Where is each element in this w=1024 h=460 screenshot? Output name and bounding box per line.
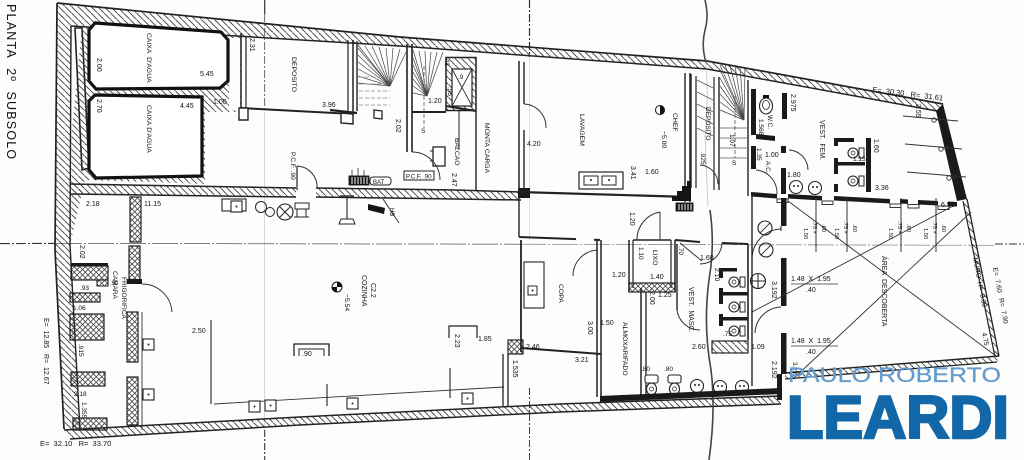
svg-text:COPA: COPA [557, 284, 564, 303]
svg-text:2.70: 2.70 [95, 99, 102, 113]
svg-text:VEST. MASC.: VEST. MASC. [687, 287, 694, 333]
svg-text:2.18: 2.18 [74, 391, 87, 398]
svg-text:LAVAGEM: LAVAGEM [578, 114, 585, 146]
svg-text:C2.2: C2.2 [369, 283, 376, 298]
svg-text:1.60: 1.60 [700, 255, 714, 262]
svg-text:1.20: 1.20 [612, 272, 626, 279]
svg-text:.75 ×: .75 × [811, 221, 817, 234]
svg-text:2.55: 2.55 [914, 104, 921, 118]
svg-text:2.192: 2.192 [770, 361, 777, 379]
svg-text:CHEF: CHEF [671, 113, 678, 132]
svg-text:1.85: 1.85 [478, 336, 492, 343]
svg-text:6.51: 6.51 [941, 202, 955, 209]
svg-text:2.60: 2.60 [692, 344, 706, 351]
svg-text:1.07: 1.07 [728, 134, 735, 147]
svg-text:.925: .925 [699, 152, 706, 165]
svg-text:2.23: 2.23 [453, 334, 460, 348]
svg-text:.75 ×: .75 × [842, 221, 848, 234]
svg-text:1.09: 1.09 [751, 344, 765, 351]
svg-text:1.06: 1.06 [73, 305, 86, 312]
svg-text:2.10: 2.10 [713, 268, 720, 281]
svg-text:1.355: 1.355 [80, 402, 87, 419]
svg-text:1.50: 1.50 [922, 228, 928, 239]
svg-text:BAT: BAT [373, 180, 385, 186]
svg-text:1.40: 1.40 [650, 274, 664, 281]
svg-text:.93: .93 [80, 285, 89, 292]
svg-text:3.41: 3.41 [629, 166, 636, 180]
svg-text:.60: .60 [905, 224, 911, 232]
svg-text:.90: .90 [302, 351, 312, 358]
svg-text:1.48 X 1.95: 1.48 X 1.95 [791, 276, 831, 283]
svg-text:1.80: 1.80 [787, 172, 801, 179]
svg-text:1.60: 1.60 [645, 169, 659, 176]
svg-text:1.15: 1.15 [853, 156, 866, 163]
svg-text:2.975: 2.975 [789, 94, 796, 112]
svg-text:HB: HB [388, 208, 394, 216]
svg-text:1.50: 1.50 [600, 320, 614, 327]
svg-text:11.15: 11.15 [144, 201, 161, 208]
svg-text:−5.54: −5.54 [343, 294, 350, 311]
svg-text:2.02: 2.02 [394, 119, 401, 133]
svg-text:.42: .42 [443, 57, 450, 66]
svg-text:DEPOSITO: DEPOSITO [290, 57, 297, 92]
svg-text:.40: .40 [806, 287, 816, 294]
svg-text:1.35: 1.35 [755, 148, 762, 161]
svg-text:3.192: 3.192 [770, 281, 777, 299]
svg-text:ÁREA DESCOBERTA: ÁREA DESCOBERTA [880, 256, 889, 327]
svg-text:4.20: 4.20 [527, 141, 541, 148]
svg-text:1.00: 1.00 [213, 99, 227, 106]
svg-text:P.C.F. .90: P.C.F. .90 [289, 152, 296, 180]
svg-text:1.25: 1.25 [658, 292, 672, 299]
svg-text:3.21: 3.21 [575, 357, 589, 364]
svg-text:4.45: 4.45 [180, 103, 194, 110]
svg-text:.80: .80 [641, 366, 650, 373]
svg-text:LEARDI: LEARDI [787, 384, 1009, 451]
svg-text:1.10: 1.10 [637, 247, 644, 260]
svg-text:CAIXA D'AGUA: CAIXA D'AGUA [145, 33, 152, 83]
svg-text:3.96: 3.96 [322, 102, 336, 109]
svg-text:ALMOXARIFADO: ALMOXARIFADO [621, 322, 628, 376]
svg-text:1.50: 1.50 [833, 228, 839, 239]
svg-text:P.C.F. .90: P.C.F. .90 [406, 175, 432, 181]
svg-text:1.20: 1.20 [428, 98, 442, 105]
svg-text:2.00: 2.00 [95, 58, 102, 72]
svg-text:2.18: 2.18 [86, 201, 100, 208]
svg-text:CAIXA D'AGUA: CAIXA D'AGUA [145, 105, 152, 153]
svg-text:S: S [732, 160, 737, 167]
svg-text:.75 ×: .75 × [931, 221, 937, 234]
svg-text:.60: .60 [940, 224, 946, 232]
svg-text:1.48 X 1.95: 1.48 X 1.95 [791, 338, 831, 345]
svg-text:1.50: 1.50 [802, 228, 808, 239]
svg-text:FRIGORIFICA: FRIGORIFICA [120, 277, 127, 320]
svg-text:BALCAO: BALCAO [453, 138, 460, 166]
svg-text:1.535: 1.535 [511, 360, 518, 378]
svg-text:.9: .9 [458, 74, 464, 81]
svg-text:3.00: 3.00 [586, 321, 593, 335]
svg-text:.95: .95 [446, 87, 453, 96]
svg-text:.90: .90 [110, 281, 119, 287]
svg-text:LIXO: LIXO [651, 250, 658, 266]
svg-text:2.00: 2.00 [648, 291, 655, 305]
svg-text:2.31: 2.31 [248, 38, 255, 52]
svg-text:.75 ×: .75 × [896, 221, 902, 234]
svg-text:3.36: 3.36 [875, 185, 889, 192]
svg-text:VEST. FEM.: VEST. FEM. [818, 120, 825, 160]
svg-text:1.20: 1.20 [628, 212, 635, 226]
svg-text:1.60: 1.60 [872, 139, 879, 153]
svg-text:.40: .40 [806, 349, 816, 356]
svg-text:.70: .70 [677, 246, 684, 255]
svg-text:2.02: 2.02 [78, 245, 85, 259]
svg-text:COZINHA: COZINHA [360, 275, 367, 307]
svg-text:.915: .915 [77, 344, 84, 357]
svg-text:A.C.: A.C. [764, 161, 771, 174]
svg-text:5.45: 5.45 [200, 71, 214, 78]
svg-text:W.C.: W.C. [766, 115, 773, 129]
svg-text:1.00: 1.00 [765, 152, 779, 159]
svg-text:DEPOSITO: DEPOSITO [704, 107, 711, 140]
svg-text:PLANTA 2º SUBSOLO: PLANTA 2º SUBSOLO [4, 4, 18, 160]
svg-text:2.46: 2.46 [526, 344, 540, 351]
svg-text:1.568: 1.568 [757, 119, 764, 136]
svg-text:−5.00: −5.00 [660, 131, 667, 148]
svg-text:S: S [421, 128, 426, 135]
svg-text:.80: .80 [664, 366, 673, 373]
svg-text:1.50: 1.50 [887, 228, 893, 239]
svg-text:2.47: 2.47 [450, 173, 457, 187]
svg-text:2.50: 2.50 [192, 328, 206, 335]
svg-text:E= 12.85 R= 12.67: E= 12.85 R= 12.67 [42, 318, 49, 385]
svg-text:.60: .60 [820, 224, 826, 232]
svg-text:E= 32.10 R= 33.70: E= 32.10 R= 33.70 [40, 439, 111, 448]
svg-text:.75: .75 [723, 331, 732, 338]
svg-text:.60: .60 [851, 224, 857, 232]
svg-text:MONTA CARGA: MONTA CARGA [483, 123, 490, 174]
